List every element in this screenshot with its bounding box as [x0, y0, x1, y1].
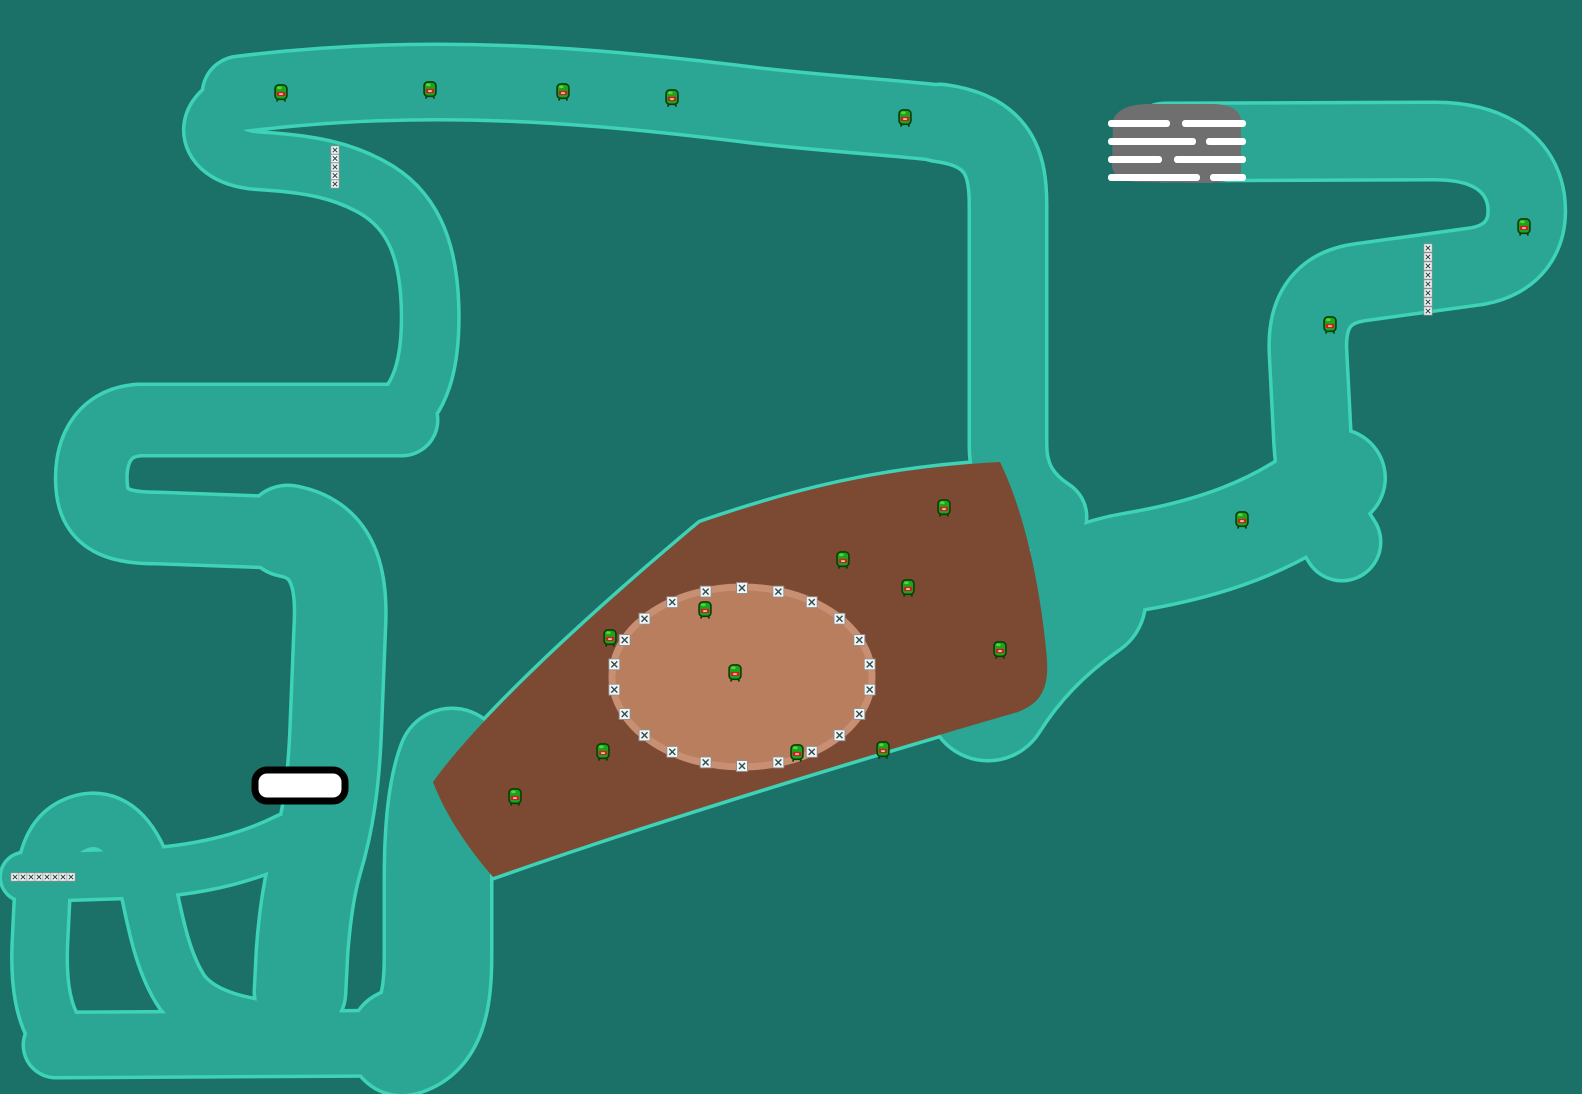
- tunnel-marker[interactable]: [255, 770, 345, 801]
- item-box-icon[interactable]: [854, 635, 865, 646]
- creature-icon[interactable]: [509, 789, 521, 806]
- creature-icon[interactable]: [699, 602, 711, 619]
- creature-icon[interactable]: [994, 642, 1006, 659]
- item-box-icon[interactable]: [1424, 271, 1432, 279]
- item-box-icon[interactable]: [619, 635, 630, 646]
- item-box-icon[interactable]: [864, 659, 875, 670]
- creature-icon[interactable]: [837, 552, 849, 569]
- item-box-icon[interactable]: [667, 597, 678, 608]
- start-grid-stripe: [1210, 174, 1246, 181]
- race-track-map: [0, 0, 1582, 1094]
- item-box-icon[interactable]: [773, 586, 784, 597]
- item-box-icon[interactable]: [609, 659, 620, 670]
- item-box-icon[interactable]: [619, 708, 630, 719]
- item-box-icon[interactable]: [737, 583, 748, 594]
- creature-icon[interactable]: [899, 110, 911, 127]
- item-box-icon[interactable]: [700, 757, 711, 768]
- item-box-icon[interactable]: [331, 154, 339, 162]
- item-box-icon[interactable]: [27, 873, 35, 881]
- item-box-icon[interactable]: [667, 746, 678, 757]
- start-grid-stripe: [1182, 120, 1246, 127]
- creature-icon[interactable]: [1236, 512, 1248, 529]
- item-box-icon[interactable]: [700, 586, 711, 597]
- item-box-icon[interactable]: [1424, 289, 1432, 297]
- item-box-icon[interactable]: [43, 873, 51, 881]
- creature-icon[interactable]: [597, 744, 609, 761]
- start-grid-stripe: [1174, 156, 1246, 163]
- item-box-icon[interactable]: [806, 597, 817, 608]
- item-box-icon[interactable]: [834, 730, 845, 741]
- item-box-icon[interactable]: [19, 873, 27, 881]
- creature-icon[interactable]: [424, 82, 436, 99]
- start-grid-stripe: [1108, 138, 1196, 145]
- item-box-icon[interactable]: [331, 171, 339, 179]
- item-box-icon[interactable]: [854, 708, 865, 719]
- start-grid-stripe: [1108, 120, 1170, 127]
- creature-icon[interactable]: [604, 630, 616, 647]
- item-box-icon[interactable]: [834, 613, 845, 624]
- track-segment-tunnel-band: [288, 531, 340, 992]
- item-box-icon[interactable]: [639, 730, 650, 741]
- creature-icon[interactable]: [902, 580, 914, 597]
- item-box-icon[interactable]: [1424, 280, 1432, 288]
- item-box-icon[interactable]: [51, 873, 59, 881]
- item-box-icon[interactable]: [1424, 253, 1432, 261]
- creature-icon[interactable]: [666, 90, 678, 107]
- item-box-icon[interactable]: [1424, 307, 1432, 315]
- item-box-icon[interactable]: [737, 761, 748, 772]
- item-box-icon[interactable]: [11, 873, 19, 881]
- creature-icon[interactable]: [877, 742, 889, 759]
- item-box-icon[interactable]: [639, 613, 650, 624]
- creature-icon[interactable]: [791, 745, 803, 762]
- item-box-icon[interactable]: [773, 757, 784, 768]
- creature-icon[interactable]: [1518, 219, 1530, 236]
- start-grid-stripe: [1206, 138, 1246, 145]
- item-box-icon[interactable]: [331, 163, 339, 171]
- creature-icon[interactable]: [1324, 317, 1336, 334]
- item-box-icon[interactable]: [35, 873, 43, 881]
- start-grid-stripe: [1108, 156, 1162, 163]
- item-box-icon[interactable]: [331, 146, 339, 154]
- creature-icon[interactable]: [557, 84, 569, 101]
- creature-icon[interactable]: [938, 500, 950, 517]
- item-box-icon[interactable]: [1424, 244, 1432, 252]
- item-box-icon[interactable]: [1424, 262, 1432, 270]
- item-box-icon[interactable]: [864, 684, 875, 695]
- item-box-icon[interactable]: [1424, 298, 1432, 306]
- track-segment-top-straight: [240, 82, 948, 124]
- item-box-icon[interactable]: [331, 180, 339, 188]
- start-grid-stripe: [1108, 174, 1200, 181]
- item-box-icon[interactable]: [59, 873, 67, 881]
- creature-icon[interactable]: [275, 85, 287, 102]
- item-box-icon[interactable]: [806, 746, 817, 757]
- track-map-canvas: [0, 0, 1582, 1094]
- dirt-oval-arena: [612, 587, 872, 767]
- creature-icon[interactable]: [729, 665, 741, 682]
- item-box-icon[interactable]: [67, 873, 75, 881]
- start-grid: [1108, 104, 1246, 183]
- item-box-icon[interactable]: [609, 684, 620, 695]
